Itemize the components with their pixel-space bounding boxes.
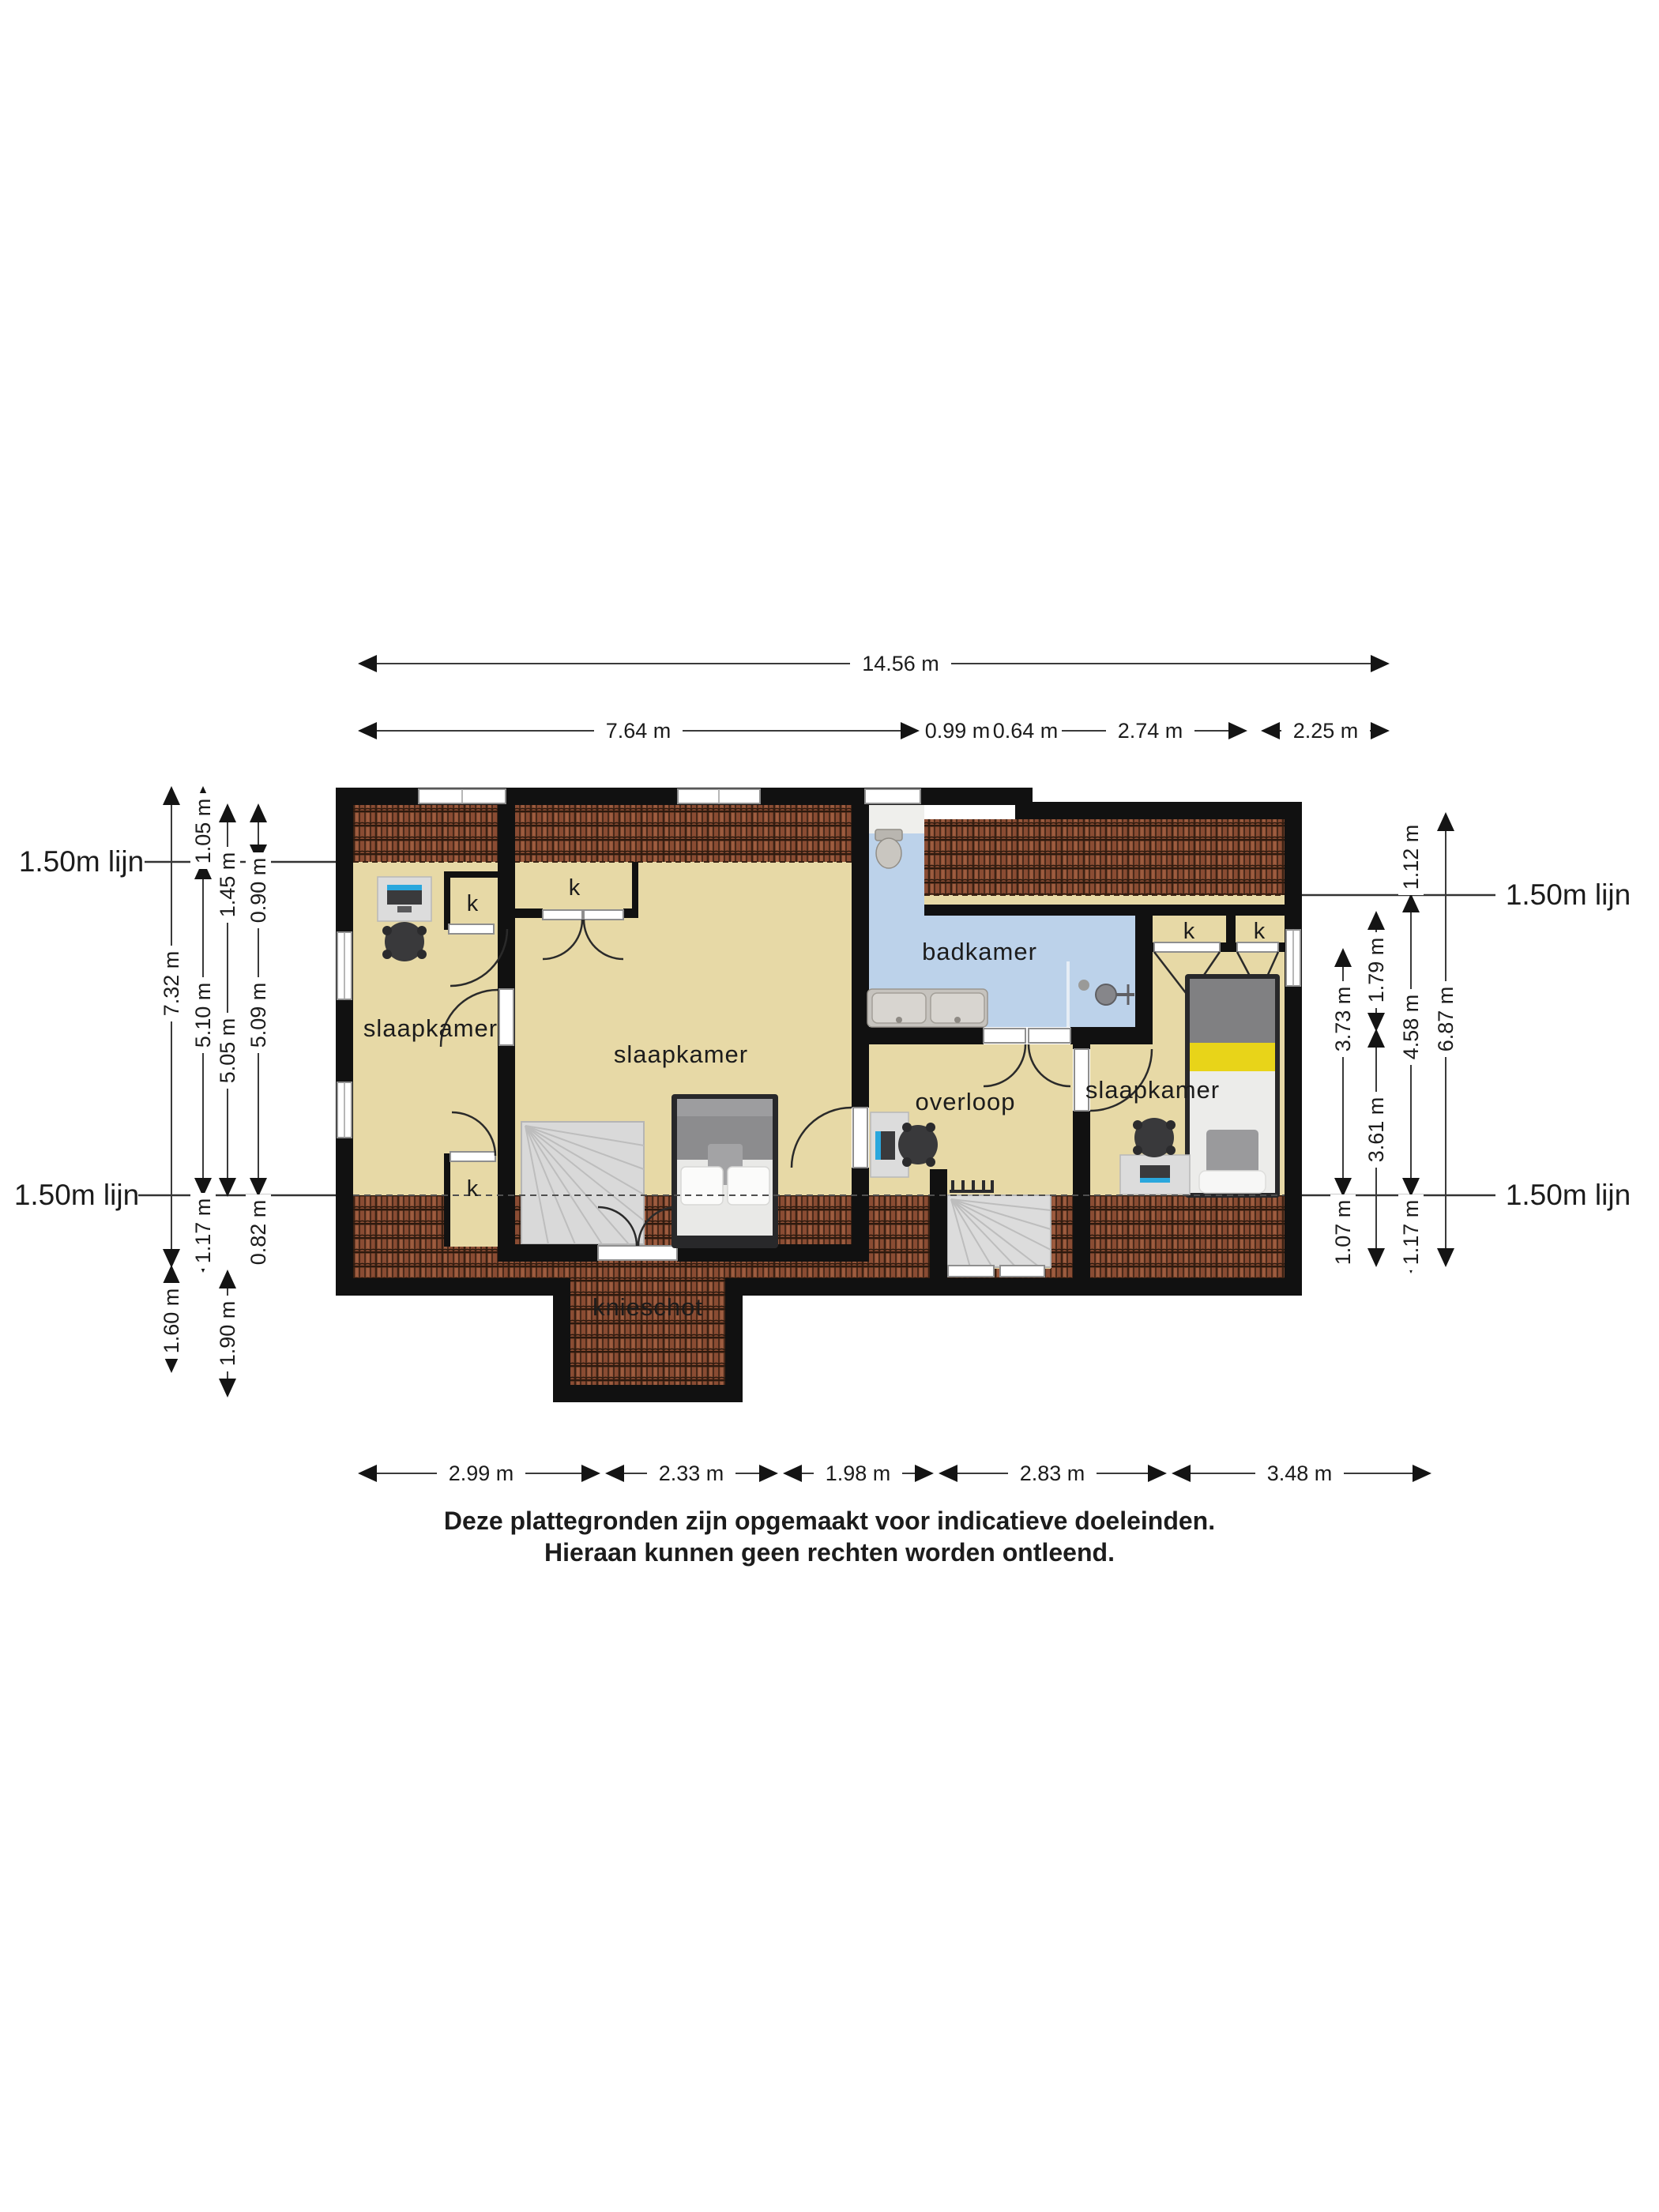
chair-right-bedroom — [1133, 1118, 1176, 1157]
wall-mid-closet-side — [632, 862, 638, 918]
dim-left-145: 1.45 m — [216, 852, 239, 918]
stairs-landing — [947, 1195, 1051, 1267]
double-sink — [867, 989, 987, 1027]
chair-landing — [898, 1123, 938, 1167]
dim-top-total: 14.56 m — [862, 652, 939, 675]
label-150-right-top: 1.50m lijn — [1506, 878, 1631, 911]
dimensions-bottom: 2.99 m 2.33 m 1.98 m 2.83 m 3.48 m — [359, 1461, 1430, 1486]
roof-band-top-left — [353, 805, 852, 862]
dim-bottom-seg5: 3.48 m — [1267, 1461, 1333, 1485]
label-150-right-bottom: 1.50m lijn — [1506, 1179, 1631, 1211]
window-stairwell-1 — [948, 1266, 994, 1277]
wall-closet-door-c — [1278, 942, 1285, 952]
label-bathroom: badkamer — [922, 938, 1037, 965]
label-150-left-top: 1.50m lijn — [19, 845, 144, 878]
door-bar-bathroom-1 — [984, 1029, 1025, 1043]
door-bar-mid-closet-1 — [543, 910, 582, 920]
toilet — [875, 829, 902, 868]
roof-band-top-right — [924, 819, 1285, 895]
dim-top-seg4: 2.74 m — [1118, 719, 1183, 743]
dim-left-509: 5.09 m — [246, 983, 270, 1048]
stairs-middle-bedroom — [521, 1122, 644, 1244]
wall-closet-door-a — [1135, 942, 1154, 952]
wall-closets-north — [924, 905, 1285, 916]
dim-top-seg5: 2.25 m — [1293, 719, 1359, 743]
wall-closet-lt-top — [444, 871, 498, 878]
dim-top-seg2: 0.99 m — [925, 719, 991, 743]
label-bedroom-right: slaapkamer — [1085, 1076, 1220, 1104]
door-bar-closet-left-bottom — [450, 1152, 495, 1161]
dimensions-top: 14.56 m 7.64 m 0.99 m 0.64 m 2.74 m 2.25… — [359, 651, 1388, 743]
wall-bathroom-west-lower — [852, 1168, 869, 1262]
dimensions-left-labels: 7.32 m 1.60 m 1.05 m 5.10 m 1.17 m 1.45 … — [159, 793, 271, 1371]
wall-stair-stub — [930, 1169, 947, 1278]
wall-right — [1285, 802, 1302, 1296]
label-closet-right-2: k — [1254, 919, 1266, 944]
chair-left-bedroom — [382, 922, 427, 961]
floor-plan-svg: slaapkamer slaapkamer slaapkamer badkame… — [0, 0, 1659, 2212]
dim-right-687: 6.87 m — [1434, 987, 1458, 1052]
door-bar-bathroom-2 — [1029, 1029, 1070, 1043]
wall-bathroom-south-a — [852, 1027, 984, 1044]
dim-top-seg1: 7.64 m — [606, 719, 671, 743]
dim-right-107: 1.07 m — [1331, 1200, 1355, 1266]
wall-bathroom-east — [1135, 905, 1153, 1044]
dim-left-105: 1.05 m — [191, 799, 215, 864]
wall-bathroom-west-upper — [852, 805, 869, 1027]
monitor — [387, 890, 422, 905]
dim-left-117: 1.17 m — [191, 1198, 215, 1264]
door-bar-closet-left-top — [449, 924, 494, 934]
dim-left-510: 5.10 m — [191, 983, 215, 1048]
dim-bottom-seg2: 2.33 m — [659, 1461, 724, 1485]
wall-top-right — [1015, 802, 1302, 819]
bed-middle-bedroom — [671, 1094, 778, 1248]
window-bathroom — [865, 789, 920, 803]
door-bar-mid-south — [598, 1246, 677, 1260]
label-closet-left-bottom: k — [467, 1176, 479, 1202]
wall-closet-door-b — [1220, 942, 1237, 952]
dim-bottom-seg3: 1.98 m — [826, 1461, 891, 1485]
dim-right-179: 1.79 m — [1364, 938, 1388, 1003]
dim-right-373: 3.73 m — [1331, 987, 1355, 1052]
dim-top-seg3: 0.64 m — [993, 719, 1059, 743]
closet-left-bottom-floor — [450, 1159, 498, 1247]
wall-mid-south-a — [515, 1244, 598, 1262]
dimensions-right — [1343, 814, 1446, 1272]
disclaimer-line2: Hieraan kunnen geen rechten worden ontle… — [544, 1538, 1115, 1567]
dim-left-190: 1.90 m — [216, 1301, 239, 1367]
dim-left-082: 0.82 m — [246, 1200, 270, 1266]
floorplan-page: slaapkamer slaapkamer slaapkamer badkame… — [0, 0, 1659, 2212]
dim-right-361: 3.61 m — [1364, 1097, 1388, 1163]
dim-right-112: 1.12 m — [1399, 825, 1423, 890]
wall-mid-closet-a — [515, 908, 543, 918]
dim-left-090: 0.90 m — [246, 858, 270, 924]
desk-left-bedroom — [378, 877, 431, 921]
label-closet-right-1: k — [1183, 919, 1195, 944]
label-knee-wall: knieschot — [592, 1293, 703, 1321]
floor-plan: slaapkamer slaapkamer slaapkamer badkame… — [336, 788, 1302, 1402]
label-bedroom-left: slaapkamer — [363, 1014, 498, 1042]
label-landing: overloop — [916, 1088, 1016, 1115]
wall-left — [336, 788, 353, 1296]
label-closet-middle: k — [569, 875, 581, 901]
label-closet-left-top: k — [467, 891, 479, 916]
dim-left-505: 5.05 m — [216, 1018, 239, 1084]
disclaimer-line1: Deze plattegronden zijn opgemaakt voor i… — [444, 1507, 1215, 1535]
window-stairwell-2 — [1000, 1266, 1044, 1277]
dim-left-160: 1.60 m — [160, 1288, 183, 1354]
screen-blue — [387, 885, 422, 890]
wall-closet-lt-side — [444, 871, 450, 930]
door-bar-divider — [499, 989, 513, 1045]
door-bar-mid-closet-2 — [584, 910, 623, 920]
label-150-left-bottom: 1.50m lijn — [14, 1179, 139, 1211]
wall-bottom-a — [336, 1278, 570, 1296]
dim-right-117: 1.17 m — [1399, 1200, 1423, 1266]
dim-bottom-seg4: 2.83 m — [1020, 1461, 1085, 1485]
door-bar-landing-mid — [853, 1108, 867, 1168]
wall-closet-lb-side — [444, 1153, 450, 1247]
dim-right-458: 4.58 m — [1399, 995, 1423, 1060]
label-bedroom-middle: slaapkamer — [614, 1040, 748, 1068]
dim-left-732: 7.32 m — [160, 951, 183, 1017]
dim-bottom-seg1: 2.99 m — [449, 1461, 514, 1485]
dimensions-right-labels: 3.73 m 1.07 m 1.79 m 3.61 m 1.12 m 4.58 … — [1330, 819, 1458, 1270]
wall-bottom-b — [725, 1278, 1302, 1296]
desk-right-bedroom — [1120, 1155, 1190, 1194]
